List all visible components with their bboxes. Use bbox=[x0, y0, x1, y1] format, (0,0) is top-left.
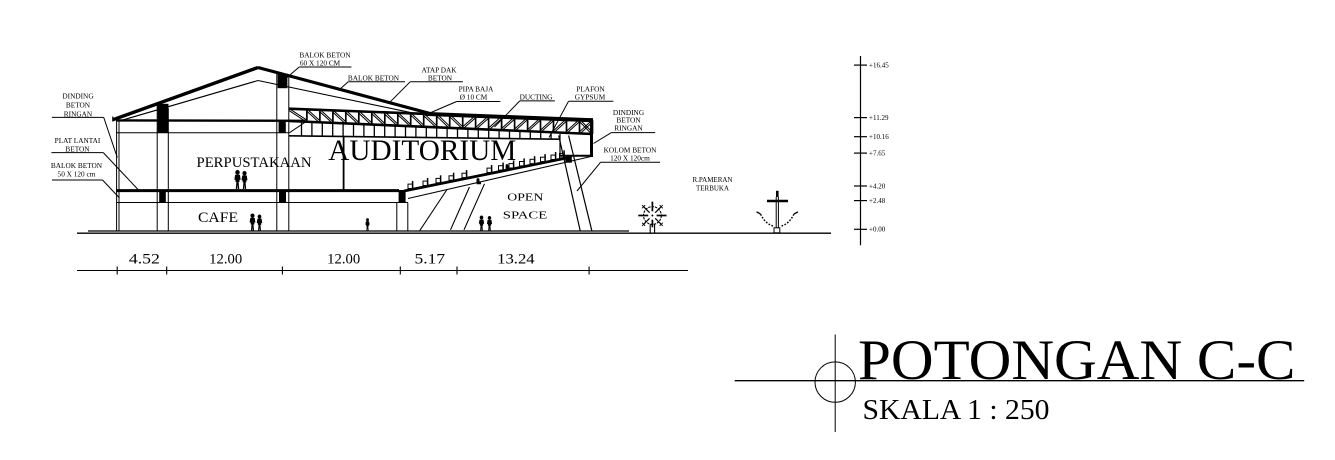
svg-text:+10.16: +10.16 bbox=[869, 133, 889, 141]
svg-text:CAFE: CAFE bbox=[198, 210, 238, 226]
svg-text:AUDITORIUM: AUDITORIUM bbox=[328, 135, 516, 167]
svg-text:120 X 120cm: 120 X 120cm bbox=[610, 154, 650, 163]
svg-text:Ø 10 CM: Ø 10 CM bbox=[460, 93, 488, 102]
svg-text:12.00: 12.00 bbox=[209, 252, 242, 268]
svg-text:DUCTING: DUCTING bbox=[520, 92, 554, 101]
svg-text:BETON: BETON bbox=[65, 144, 90, 153]
svg-text:POTONGAN C-C: POTONGAN C-C bbox=[858, 329, 1296, 392]
svg-text:SPACE: SPACE bbox=[503, 211, 548, 222]
svg-text:+11.29: +11.29 bbox=[869, 114, 889, 122]
svg-text:BETON: BETON bbox=[66, 100, 91, 109]
svg-text:50 X 120 cm: 50 X 120 cm bbox=[58, 170, 96, 179]
svg-text:12.00: 12.00 bbox=[327, 252, 360, 268]
svg-text:5.17: 5.17 bbox=[415, 252, 446, 268]
svg-text:+16.45: +16.45 bbox=[869, 62, 889, 70]
svg-text:SKALA 1 : 250: SKALA 1 : 250 bbox=[863, 395, 1050, 426]
svg-text:GYPSUM: GYPSUM bbox=[575, 93, 606, 102]
svg-text:60 X 120 CM: 60 X 120 CM bbox=[300, 58, 341, 67]
svg-text:13.24: 13.24 bbox=[497, 252, 535, 268]
svg-text:TERBUKA: TERBUKA bbox=[696, 185, 729, 193]
svg-text:BALOK BETON: BALOK BETON bbox=[51, 161, 103, 170]
svg-text:PERPUSTAKAAN: PERPUSTAKAAN bbox=[197, 155, 312, 171]
svg-text:R.PAMERAN: R.PAMERAN bbox=[692, 176, 732, 184]
svg-text:BALOK BETON: BALOK BETON bbox=[348, 73, 400, 82]
svg-text:+2.48: +2.48 bbox=[869, 197, 886, 205]
svg-text:+7.65: +7.65 bbox=[869, 150, 886, 158]
svg-text:DINDING: DINDING bbox=[62, 91, 94, 100]
svg-text:4.52: 4.52 bbox=[129, 252, 160, 268]
svg-text:+0.00: +0.00 bbox=[869, 226, 886, 234]
svg-text:RINGAN: RINGAN bbox=[614, 123, 643, 132]
svg-text:OPEN: OPEN bbox=[507, 193, 544, 204]
svg-text:+4.20: +4.20 bbox=[869, 182, 886, 190]
